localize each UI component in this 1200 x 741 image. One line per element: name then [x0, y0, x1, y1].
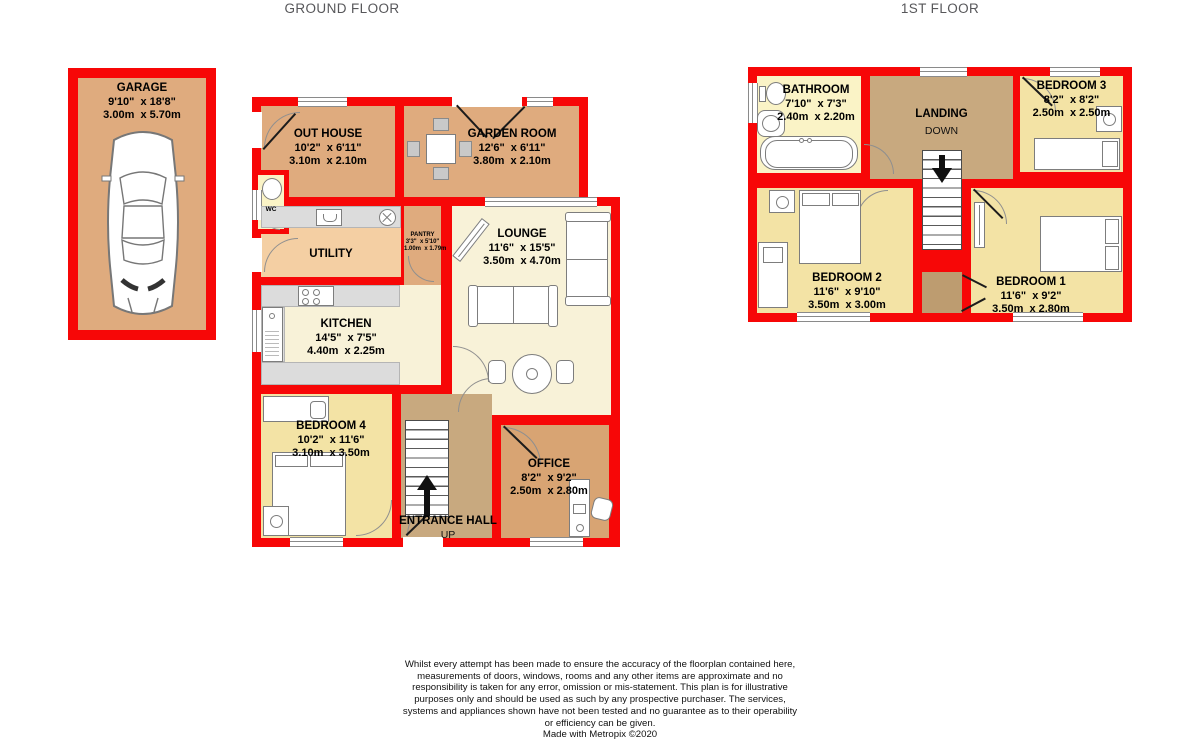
desk-drawer — [573, 504, 586, 514]
lounge-label: LOUNGE 11'6" x 15'5" 3.50m x 4.70m — [455, 228, 589, 269]
unit-circle — [270, 515, 283, 528]
wc-label: WC — [258, 203, 284, 217]
hob-ring — [313, 289, 320, 296]
clothes-icon — [310, 401, 326, 419]
kitchen-counter-bottom — [261, 362, 400, 385]
window — [1050, 67, 1100, 77]
bed-double — [1040, 216, 1122, 272]
radiator-icon — [974, 202, 985, 248]
extractor-icon — [379, 209, 396, 226]
kitchen-label: KITCHEN 14'5" x 7'5" 4.40m x 2.25m — [266, 318, 426, 359]
desk-knob — [576, 524, 584, 532]
bed-single — [1034, 138, 1120, 170]
down-arrow-head-icon — [932, 168, 952, 183]
down-arrow-icon — [939, 155, 945, 169]
landing-label: LANDING — [870, 108, 1013, 122]
cushion-line — [513, 287, 514, 323]
tap — [799, 138, 804, 143]
bathroom-label: BATHROOM 7'10" x 7'3" 2.40m x 2.20m — [766, 84, 866, 125]
entrance-hall-direction: UP — [392, 529, 504, 541]
garage-label: GARAGE 9'10" x 18'8" 3.00m x 5.70m — [78, 82, 206, 123]
chair — [488, 360, 506, 384]
cupboard — [922, 272, 962, 313]
landing-direction: DOWN — [870, 125, 1013, 137]
bedroom1-label: BEDROOM 1 11'6" x 9'2" 3.50m x 2.80m — [965, 276, 1097, 317]
window — [797, 312, 870, 322]
up-arrow-head-icon — [417, 475, 437, 490]
metropix-credit: Made with Metropix ©2020 — [401, 729, 799, 741]
hob-ring — [302, 298, 309, 305]
chair — [556, 360, 574, 384]
bedside-unit — [769, 190, 795, 213]
unit-circle — [776, 196, 789, 209]
sofa-arm — [565, 296, 611, 306]
sofa-arm — [565, 212, 611, 222]
dining-chair — [407, 141, 420, 157]
toilet-icon — [262, 178, 282, 200]
pantry-label: PANTRY 3'3" x 5'10" 1.00m x 1.79m — [404, 232, 441, 253]
first-floor-title: 1ST FLOOR — [850, 1, 1030, 16]
bed-double — [799, 190, 861, 264]
pillow — [1105, 219, 1119, 244]
out-house-label: OUT HOUSE 10'2" x 6'11" 3.10m x 2.10m — [261, 128, 395, 169]
table-center — [526, 368, 538, 380]
sofa — [472, 286, 554, 324]
disclaimer: Whilst every attempt has been made to en… — [401, 659, 799, 741]
bedroom2-label: BEDROOM 2 11'6" x 9'10" 3.50m x 3.00m — [781, 272, 913, 313]
pillow — [802, 193, 830, 206]
window — [485, 197, 597, 207]
tap — [807, 138, 812, 143]
pillow — [832, 193, 859, 206]
bath-inner — [765, 140, 853, 168]
basin-bowl — [323, 214, 337, 222]
up-arrow-icon — [424, 489, 430, 516]
hob-ring — [313, 298, 320, 305]
window — [298, 97, 347, 107]
dining-chair — [433, 167, 449, 180]
round-table — [512, 354, 552, 394]
clothes-icon — [763, 247, 783, 263]
washbasin-icon — [316, 209, 342, 226]
bedroom3-label: BEDROOM 3 8'2" x 8'2" 2.50m x 2.50m — [1020, 80, 1123, 121]
sofa-arm — [468, 285, 478, 327]
sofa-arm — [548, 285, 558, 327]
garden-doors-opening — [452, 97, 522, 107]
pillow — [1102, 141, 1118, 167]
radiator-line — [979, 205, 980, 245]
bath-icon — [760, 136, 858, 170]
entrance-hall-label: ENTRANCE HALL — [392, 515, 504, 529]
bedside-unit — [263, 506, 289, 536]
hob-icon — [298, 286, 334, 306]
wardrobe — [263, 396, 329, 422]
window — [290, 537, 343, 547]
window — [920, 67, 967, 77]
floorplan-page: { "titles": { "ground": "GROUND FLOOR", … — [0, 0, 1200, 719]
utility-label: UTILITY — [261, 248, 401, 262]
bedroom4-label: BEDROOM 4 10'2" x 11'6" 3.10m x 3.50m — [261, 420, 401, 461]
window — [527, 97, 553, 107]
pillow — [1105, 246, 1119, 270]
toilet-cistern — [759, 86, 766, 102]
garden-room-label: GARDEN ROOM 12'6" x 6'11" 3.80m x 2.10m — [445, 128, 579, 169]
office-label: OFFICE 8'2" x 9'2" 2.50m x 2.80m — [490, 458, 608, 499]
hob-ring — [302, 289, 309, 296]
car-icon — [98, 120, 188, 325]
window — [530, 537, 583, 547]
ground-floor-title: GROUND FLOOR — [252, 1, 432, 16]
